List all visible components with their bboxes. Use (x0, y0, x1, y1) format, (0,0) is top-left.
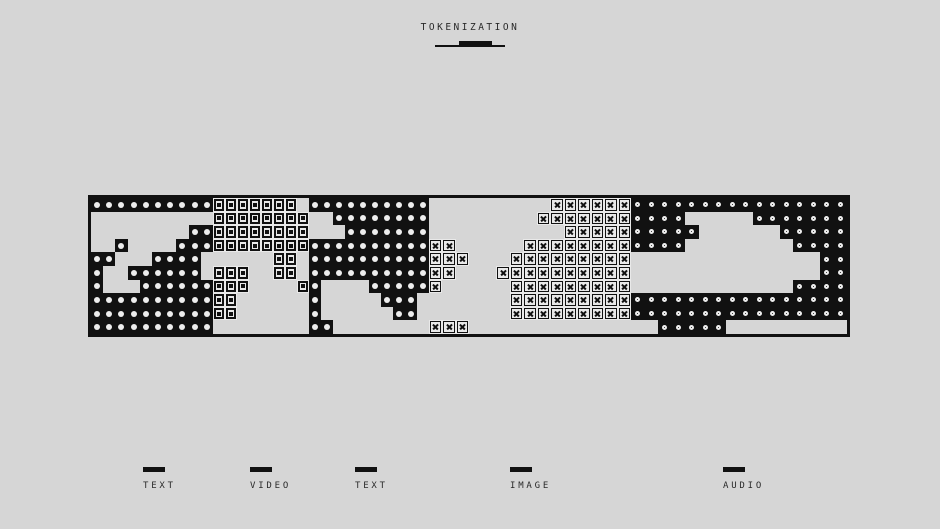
ring-token-icon (757, 297, 762, 302)
token-cell (834, 307, 848, 321)
token-cell (357, 266, 369, 280)
token-cell (766, 307, 780, 321)
cross-token-icon (592, 281, 603, 293)
token-cell (381, 239, 393, 253)
token-cell (249, 198, 261, 212)
square-token-icon (214, 199, 224, 211)
dot-token-icon (408, 270, 414, 276)
cross-token-icon (511, 281, 522, 293)
token-cell (699, 198, 713, 212)
token-cell (537, 225, 550, 239)
dot-token-icon (360, 256, 366, 262)
token-cell (699, 293, 713, 307)
token-cell (249, 280, 261, 294)
dot-token-icon (324, 243, 330, 249)
token-cell (237, 293, 249, 307)
token-cell (523, 293, 536, 307)
token-cell (285, 307, 297, 321)
token-cell (261, 293, 273, 307)
token-cell (309, 198, 321, 212)
token-cell (510, 212, 523, 226)
dot-token-icon (155, 202, 161, 208)
ring-token-icon (784, 311, 789, 316)
token-cell (537, 266, 550, 280)
legend-tick (250, 467, 272, 472)
token-cell (537, 252, 550, 266)
dot-token-icon (396, 202, 402, 208)
token-cell (820, 225, 834, 239)
token-cell (249, 307, 261, 321)
dot-token-icon (360, 215, 366, 221)
token-cell (381, 225, 393, 239)
token-cell (550, 212, 563, 226)
token-cell (405, 307, 417, 321)
cross-token-icon (538, 281, 549, 293)
ring-token-icon (635, 216, 640, 221)
token-cell (753, 280, 767, 294)
token-cell (712, 293, 726, 307)
token-cell (766, 252, 780, 266)
dot-token-icon (192, 283, 198, 289)
token-cell (237, 280, 249, 294)
cross-token-icon (619, 253, 630, 265)
dot-token-icon (312, 324, 318, 330)
dot-token-icon (384, 297, 390, 303)
token-cell (807, 280, 821, 294)
token-cell (604, 225, 617, 239)
token-cell (456, 266, 469, 280)
token-cell (618, 266, 631, 280)
token-cell (140, 198, 152, 212)
token-cell (345, 198, 357, 212)
square-token-icon (274, 240, 284, 252)
square-token-icon (226, 308, 236, 320)
token-cell (393, 266, 405, 280)
token-cell (793, 320, 807, 334)
token-cell (429, 266, 442, 280)
token-cell (128, 280, 140, 294)
token-cell (807, 212, 821, 226)
token-cell (345, 320, 357, 334)
token-cell (699, 252, 713, 266)
token-cell (249, 266, 261, 280)
token-cell (140, 293, 152, 307)
cross-token-icon (578, 226, 589, 238)
square-token-icon (226, 199, 236, 211)
token-cell (537, 198, 550, 212)
token-cell (417, 212, 429, 226)
ring-token-icon (757, 311, 762, 316)
token-cell (285, 280, 297, 294)
dot-token-icon (408, 215, 414, 221)
token-cell (115, 307, 127, 321)
token-cell (140, 280, 152, 294)
token-cell (550, 280, 563, 294)
token-cell (766, 239, 780, 253)
dot-token-icon (372, 270, 378, 276)
token-cell (456, 239, 469, 253)
token-cell (658, 198, 672, 212)
token-cell (483, 307, 496, 321)
token-cell (739, 252, 753, 266)
cross-token-icon (605, 294, 616, 306)
token-cell (321, 212, 333, 226)
token-cell (753, 198, 767, 212)
cross-token-icon (578, 253, 589, 265)
token-cell (369, 239, 381, 253)
token-cell (712, 280, 726, 294)
token-cell (333, 266, 345, 280)
token-cell (381, 280, 393, 294)
token-cell (523, 225, 536, 239)
token-cell (577, 293, 590, 307)
token-cell (225, 252, 237, 266)
token-cell (807, 293, 821, 307)
token-cell (115, 239, 127, 253)
token-cell (645, 212, 659, 226)
cross-token-icon (538, 294, 549, 306)
token-cell (164, 293, 176, 307)
square-token-icon (298, 226, 308, 238)
token-cell (820, 198, 834, 212)
square-token-icon (238, 226, 248, 238)
dot-token-icon (312, 297, 318, 303)
token-cell (726, 252, 740, 266)
token-cell (469, 307, 482, 321)
token-cell (405, 293, 417, 307)
token-cell (780, 225, 794, 239)
token-cell (631, 239, 645, 253)
token-cell (807, 225, 821, 239)
token-cell (834, 280, 848, 294)
token-cell (128, 307, 140, 321)
dot-token-icon (155, 297, 161, 303)
token-cell (201, 239, 213, 253)
ring-token-icon (838, 284, 843, 289)
dot-token-icon (167, 311, 173, 317)
token-cell (753, 239, 767, 253)
scrubber-handle[interactable] (459, 41, 492, 48)
segment-text-1 (91, 198, 213, 334)
token-cell (189, 198, 201, 212)
cross-token-icon (605, 240, 616, 252)
dot-token-icon (408, 229, 414, 235)
token-cell (333, 320, 345, 334)
ring-token-icon (743, 297, 748, 302)
cross-token-icon (457, 321, 468, 333)
token-cell (225, 280, 237, 294)
dot-token-icon (312, 283, 318, 289)
cross-token-icon (619, 240, 630, 252)
token-cell (672, 239, 686, 253)
ring-token-icon (824, 229, 829, 234)
token-cell (591, 307, 604, 321)
token-cell (699, 225, 713, 239)
token-cell (564, 320, 577, 334)
token-cell (91, 225, 103, 239)
token-cell (645, 320, 659, 334)
token-cell (699, 280, 713, 294)
token-cell (793, 212, 807, 226)
cross-token-icon (524, 267, 535, 279)
square-token-icon (286, 213, 296, 225)
token-cell (456, 212, 469, 226)
dot-token-icon (179, 311, 185, 317)
token-cell (618, 280, 631, 294)
token-cell (780, 252, 794, 266)
ring-token-icon (838, 297, 843, 302)
token-cell (237, 225, 249, 239)
cross-token-icon (619, 267, 630, 279)
token-cell (645, 307, 659, 321)
ring-token-icon (662, 229, 667, 234)
ring-token-icon (689, 229, 694, 234)
square-token-icon (274, 253, 284, 265)
token-cell (345, 280, 357, 294)
token-cell (237, 266, 249, 280)
dot-token-icon (155, 256, 161, 262)
token-cell (685, 320, 699, 334)
token-cell (345, 252, 357, 266)
legend-tick (143, 467, 165, 472)
cross-token-icon (430, 267, 441, 279)
token-cell (469, 293, 482, 307)
token-cell (685, 212, 699, 226)
token-cell (604, 320, 617, 334)
token-cell (604, 280, 617, 294)
token-cell (469, 212, 482, 226)
token-cell (321, 307, 333, 321)
token-cell (631, 320, 645, 334)
cross-token-icon (605, 267, 616, 279)
token-cell (564, 266, 577, 280)
ring-token-icon (824, 216, 829, 221)
token-cell (456, 252, 469, 266)
dot-token-icon (348, 202, 354, 208)
token-cell (577, 266, 590, 280)
token-cell (225, 198, 237, 212)
token-cell (645, 280, 659, 294)
token-cell (469, 320, 482, 334)
ring-token-icon (797, 202, 802, 207)
token-cell (189, 320, 201, 334)
token-cell (469, 225, 482, 239)
token-cell (333, 225, 345, 239)
dot-token-icon (312, 243, 318, 249)
dot-token-icon (94, 202, 100, 208)
cross-token-icon (605, 226, 616, 238)
token-cell (381, 293, 393, 307)
dot-token-icon (94, 297, 100, 303)
token-cell (510, 280, 523, 294)
token-cell (780, 239, 794, 253)
dot-token-icon (106, 202, 112, 208)
token-cell (357, 198, 369, 212)
token-cell (213, 280, 225, 294)
token-cell (152, 198, 164, 212)
dot-token-icon (384, 256, 390, 262)
ring-token-icon (824, 311, 829, 316)
dot-token-icon (155, 270, 161, 276)
token-cell (618, 198, 631, 212)
token-cell (285, 266, 297, 280)
token-cell (128, 252, 140, 266)
token-cell (152, 266, 164, 280)
cross-token-icon (497, 267, 508, 279)
cross-token-icon (430, 281, 441, 293)
token-cell (429, 212, 442, 226)
ring-token-icon (676, 216, 681, 221)
token-cell (103, 307, 115, 321)
token-cell (496, 307, 509, 321)
cross-token-icon (605, 199, 616, 211)
token-cell (91, 293, 103, 307)
token-cell (393, 293, 405, 307)
token-cell (820, 280, 834, 294)
token-cell (103, 293, 115, 307)
token-cell (309, 212, 321, 226)
dot-token-icon (179, 297, 185, 303)
token-cell (140, 225, 152, 239)
token-cell (152, 320, 164, 334)
token-cell (405, 198, 417, 212)
dot-token-icon (179, 243, 185, 249)
dot-token-icon (204, 297, 210, 303)
token-cell (834, 225, 848, 239)
cross-token-icon (619, 213, 630, 225)
token-cell (321, 198, 333, 212)
dot-token-icon (192, 256, 198, 262)
token-cell (429, 252, 442, 266)
ring-token-icon (784, 297, 789, 302)
cross-token-icon (565, 213, 576, 225)
ring-token-icon (716, 297, 721, 302)
dot-token-icon (94, 283, 100, 289)
token-cell (510, 239, 523, 253)
dot-token-icon (312, 311, 318, 317)
token-cell (309, 266, 321, 280)
token-cell (672, 307, 686, 321)
token-cell (91, 212, 103, 226)
token-cell (213, 252, 225, 266)
dot-token-icon (167, 202, 173, 208)
dot-token-icon (192, 202, 198, 208)
token-cell (321, 280, 333, 294)
token-cell (726, 212, 740, 226)
token-cell (807, 266, 821, 280)
token-cell (176, 320, 188, 334)
square-token-icon (250, 199, 260, 211)
token-cell (726, 307, 740, 321)
token-cell (152, 225, 164, 239)
token-cell (604, 252, 617, 266)
ring-token-icon (676, 202, 681, 207)
token-cell (357, 293, 369, 307)
square-token-icon (286, 199, 296, 211)
dot-token-icon (420, 215, 426, 221)
token-cell (442, 320, 455, 334)
token-cell (225, 320, 237, 334)
token-cell (739, 225, 753, 239)
token-cell (631, 212, 645, 226)
ring-token-icon (824, 257, 829, 262)
token-cell (429, 239, 442, 253)
ring-token-icon (757, 202, 762, 207)
ring-token-icon (649, 243, 654, 248)
token-cell (658, 212, 672, 226)
token-cell (726, 293, 740, 307)
token-cell (140, 212, 152, 226)
ring-token-icon (649, 229, 654, 234)
token-cell (345, 293, 357, 307)
cross-token-icon (443, 267, 454, 279)
token-cell (591, 225, 604, 239)
token-cell (164, 198, 176, 212)
token-cell (164, 225, 176, 239)
cross-token-icon (605, 308, 616, 320)
token-cell (618, 239, 631, 253)
cross-token-icon (524, 281, 535, 293)
dot-token-icon (94, 311, 100, 317)
token-cell (645, 293, 659, 307)
token-cell (685, 252, 699, 266)
token-cell (469, 280, 482, 294)
ring-token-icon (703, 311, 708, 316)
legend-item-audio-4: AUDIO (723, 467, 764, 491)
token-cell (672, 198, 686, 212)
ring-token-icon (811, 243, 816, 248)
token-cell (140, 320, 152, 334)
ring-token-icon (635, 202, 640, 207)
dot-token-icon (360, 229, 366, 235)
dot-token-icon (324, 202, 330, 208)
dot-token-icon (372, 202, 378, 208)
token-cell (176, 198, 188, 212)
legend-item-text-0: TEXT (143, 467, 176, 491)
token-cell (496, 212, 509, 226)
legend-tick (355, 467, 377, 472)
token-cell (115, 225, 127, 239)
token-cell (417, 307, 429, 321)
token-cell (285, 320, 297, 334)
token-cell (442, 293, 455, 307)
square-token-icon (214, 240, 224, 252)
token-cell (577, 198, 590, 212)
timeline-scrubber-icon (435, 40, 505, 47)
token-cell (297, 239, 309, 253)
dot-token-icon (106, 311, 112, 317)
token-cell (261, 266, 273, 280)
dot-token-icon (336, 202, 342, 208)
token-cell (618, 320, 631, 334)
token-cell (152, 293, 164, 307)
token-cell (189, 307, 201, 321)
token-cell (712, 266, 726, 280)
token-cell (225, 266, 237, 280)
token-cell (103, 239, 115, 253)
token-cell (381, 252, 393, 266)
token-cell (297, 266, 309, 280)
cross-token-icon (578, 294, 589, 306)
token-cell (672, 293, 686, 307)
square-token-icon (298, 240, 308, 252)
token-cell (577, 307, 590, 321)
token-cell (604, 293, 617, 307)
token-cell (820, 266, 834, 280)
square-token-icon (262, 213, 272, 225)
token-cell (780, 293, 794, 307)
token-cell (699, 320, 713, 334)
